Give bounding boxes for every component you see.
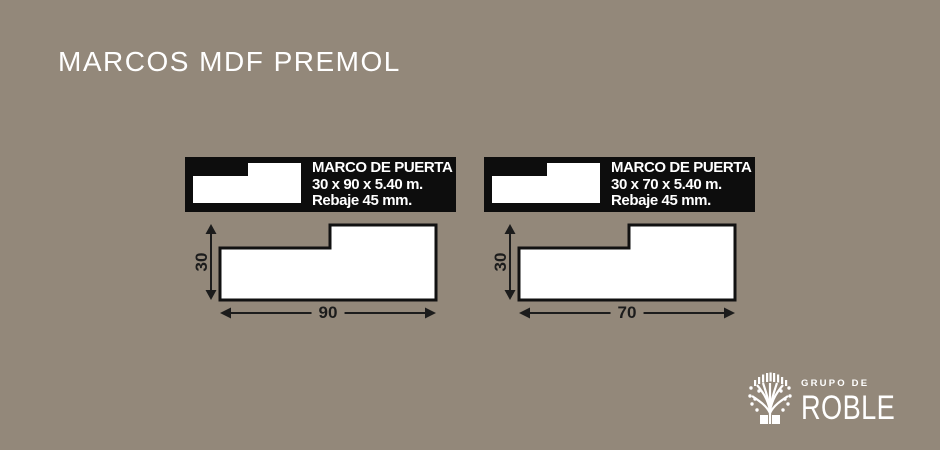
frame-label-card: MARCO DE PUERTA 30 x 90 x 5.40 m. Rebaje… xyxy=(185,157,456,212)
frame-dimensions: 30 x 90 x 5.40 m. xyxy=(312,177,452,194)
logo-group-text: GRUPO DE xyxy=(801,378,919,389)
oak-tree-icon xyxy=(748,371,792,424)
frame-label-text: MARCO DE PUERTA 30 x 70 x 5.40 m. Rebaje… xyxy=(611,160,751,210)
poster-background: MARCOS MDF PREMOL MARCO DE PUERTA 30 x 9… xyxy=(0,0,940,450)
height-dimension-label: 30 xyxy=(491,253,511,272)
frame-rebate: Rebaje 45 mm. xyxy=(312,193,452,210)
frame-title: MARCO DE PUERTA xyxy=(312,160,452,177)
logo-text-block: GRUPO DE ROBLE xyxy=(801,371,919,425)
frame-title: MARCO DE PUERTA xyxy=(611,160,751,177)
frame-rebate: Rebaje 45 mm. xyxy=(611,193,751,210)
profile-thumbnail-icon xyxy=(193,163,301,203)
frame-dimensions: 30 x 70 x 5.40 m. xyxy=(611,177,751,194)
height-dimension-label: 30 xyxy=(192,253,212,272)
width-dimension-label: 70 xyxy=(611,303,644,323)
frame-diagram-70: MARCO DE PUERTA 30 x 70 x 5.40 m. Rebaje… xyxy=(484,157,755,332)
frame-diagram-90: MARCO DE PUERTA 30 x 90 x 5.40 m. Rebaje… xyxy=(185,157,456,332)
width-dimension-label: 90 xyxy=(312,303,345,323)
logo-brand-text: ROBLE xyxy=(801,391,895,425)
profile-thumbnail-icon xyxy=(492,163,600,203)
profile-shape xyxy=(516,222,738,303)
frame-label-text: MARCO DE PUERTA 30 x 90 x 5.40 m. Rebaje… xyxy=(312,160,452,210)
frame-label-card: MARCO DE PUERTA 30 x 70 x 5.40 m. Rebaje… xyxy=(484,157,755,212)
page-title: MARCOS MDF PREMOL xyxy=(58,46,401,78)
grupo-roble-logo: GRUPO DE ROBLE xyxy=(748,371,919,425)
profile-shape xyxy=(217,222,439,303)
